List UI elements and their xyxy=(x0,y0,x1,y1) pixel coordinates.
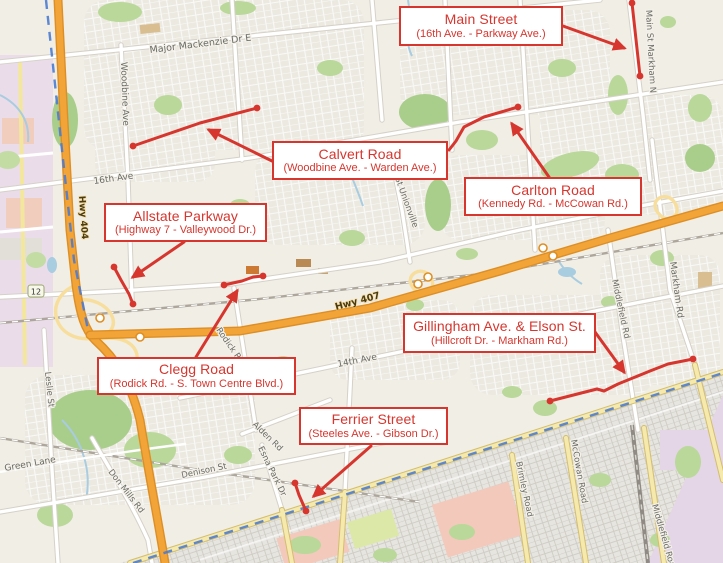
carlton-road-subtitle: (Kennedy Rd. - McCowan Rd.) xyxy=(478,198,628,211)
allstate-parkway-title: Allstate Parkway xyxy=(133,208,238,225)
ferrier-street-title: Ferrier Street xyxy=(332,411,416,428)
gillingham-elson-subtitle: (Hillcroft Dr. - Markham Rd.) xyxy=(431,335,568,348)
allstate-parkway-label: Allstate Parkway (Highway 7 - Valleywood… xyxy=(104,203,267,242)
gillingham-elson-label: Gillingham Ave. & Elson St. (Hillcroft D… xyxy=(403,313,596,353)
clegg-road-title: Clegg Road xyxy=(159,361,234,378)
gillingham-elson-title: Gillingham Ave. & Elson St. xyxy=(413,318,586,335)
calvert-road-title: Calvert Road xyxy=(319,146,402,163)
main-street-title: Main Street xyxy=(445,11,518,28)
allstate-parkway-subtitle: (Highway 7 - Valleywood Dr.) xyxy=(115,224,256,237)
main-street-label: Main Street (16th Ave. - Parkway Ave.) xyxy=(399,6,563,46)
carlton-road-title: Carlton Road xyxy=(511,182,595,199)
map-screenshot: Major Mackenzie Dr E Woodbine Ave 16th A… xyxy=(0,0,723,563)
ferrier-street-subtitle: (Steeles Ave. - Gibson Dr.) xyxy=(308,428,438,441)
route-shield-12: 12 xyxy=(28,285,44,297)
carlton-road-label: Carlton Road (Kennedy Rd. - McCowan Rd.) xyxy=(464,177,642,216)
calvert-road-subtitle: (Woodbine Ave. - Warden Ave.) xyxy=(283,162,436,175)
clegg-road-label: Clegg Road (Rodick Rd. - S. Town Centre … xyxy=(97,357,296,395)
ferrier-street-label: Ferrier Street (Steeles Ave. - Gibson Dr… xyxy=(299,407,448,445)
map-canvas[interactable]: Major Mackenzie Dr E Woodbine Ave 16th A… xyxy=(0,0,723,563)
main-street-subtitle: (16th Ave. - Parkway Ave.) xyxy=(416,28,545,41)
calvert-road-label: Calvert Road (Woodbine Ave. - Warden Ave… xyxy=(272,141,448,180)
clegg-road-subtitle: (Rodick Rd. - S. Town Centre Blvd.) xyxy=(110,378,283,391)
route-shield-12-text: 12 xyxy=(31,288,41,297)
